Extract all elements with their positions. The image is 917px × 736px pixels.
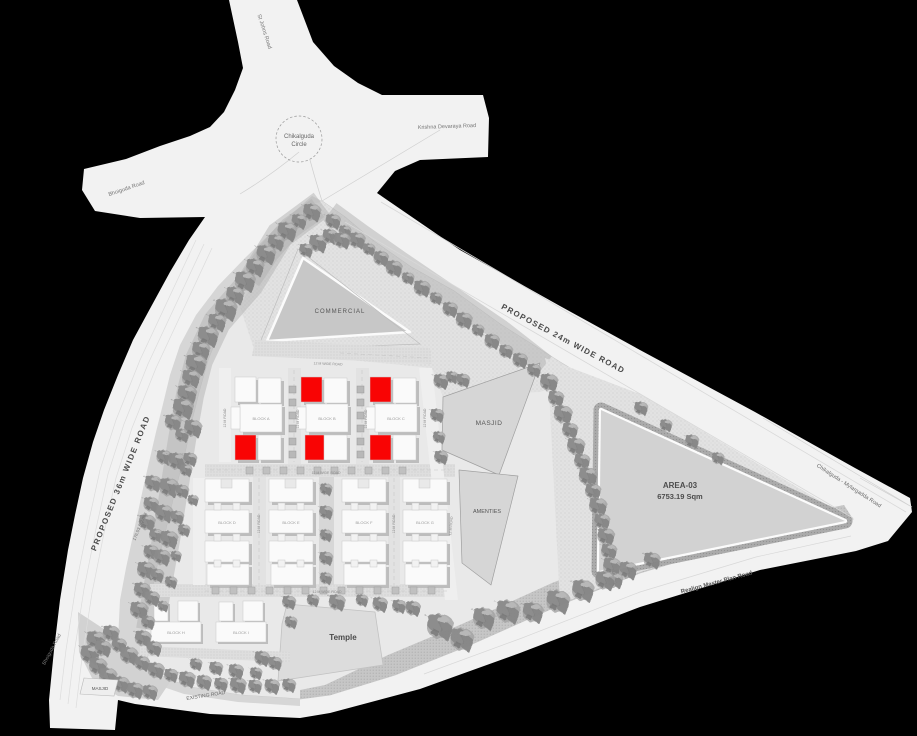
svg-text:BLOCK H: BLOCK H <box>167 630 185 635</box>
svg-text:BLOCK D: BLOCK D <box>218 520 236 525</box>
svg-text:BLOCK F: BLOCK F <box>355 520 373 525</box>
svg-text:12 M ROAD: 12 M ROAD <box>223 408 227 427</box>
svg-text:12 M WIDE ROAD: 12 M WIDE ROAD <box>312 471 341 475</box>
svg-text:COMMERCIAL: COMMERCIAL <box>315 309 366 315</box>
svg-text:Circle: Circle <box>291 142 307 148</box>
svg-text:AREA-03: AREA-03 <box>663 481 698 490</box>
svg-text:BLOCK A: BLOCK A <box>252 416 269 421</box>
svg-text:MASJID: MASJID <box>476 420 503 427</box>
svg-text:MASJID: MASJID <box>92 686 109 691</box>
svg-text:12 M WIDE ROAD: 12 M WIDE ROAD <box>313 590 342 594</box>
svg-text:12 M ROAD: 12 M ROAD <box>257 514 261 533</box>
svg-text:BLOCK C: BLOCK C <box>387 416 405 421</box>
svg-text:12 M ROAD: 12 M ROAD <box>296 409 300 428</box>
svg-text:BLOCK B: BLOCK B <box>318 416 336 421</box>
svg-text:12 M ROAD: 12 M ROAD <box>364 409 368 428</box>
svg-text:AMENTIES: AMENTIES <box>473 509 501 515</box>
svg-text:BLOCK E: BLOCK E <box>282 520 300 525</box>
svg-text:12 M ROAD: 12 M ROAD <box>392 514 396 533</box>
svg-text:Chikalguda: Chikalguda <box>284 134 315 140</box>
svg-text:6753.19 Sqm: 6753.19 Sqm <box>657 492 703 501</box>
svg-text:Temple: Temple <box>329 633 357 642</box>
svg-text:12 M ROAD: 12 M ROAD <box>423 408 427 427</box>
svg-text:BLOCK I: BLOCK I <box>233 630 249 635</box>
svg-text:BLOCK G: BLOCK G <box>416 520 434 525</box>
